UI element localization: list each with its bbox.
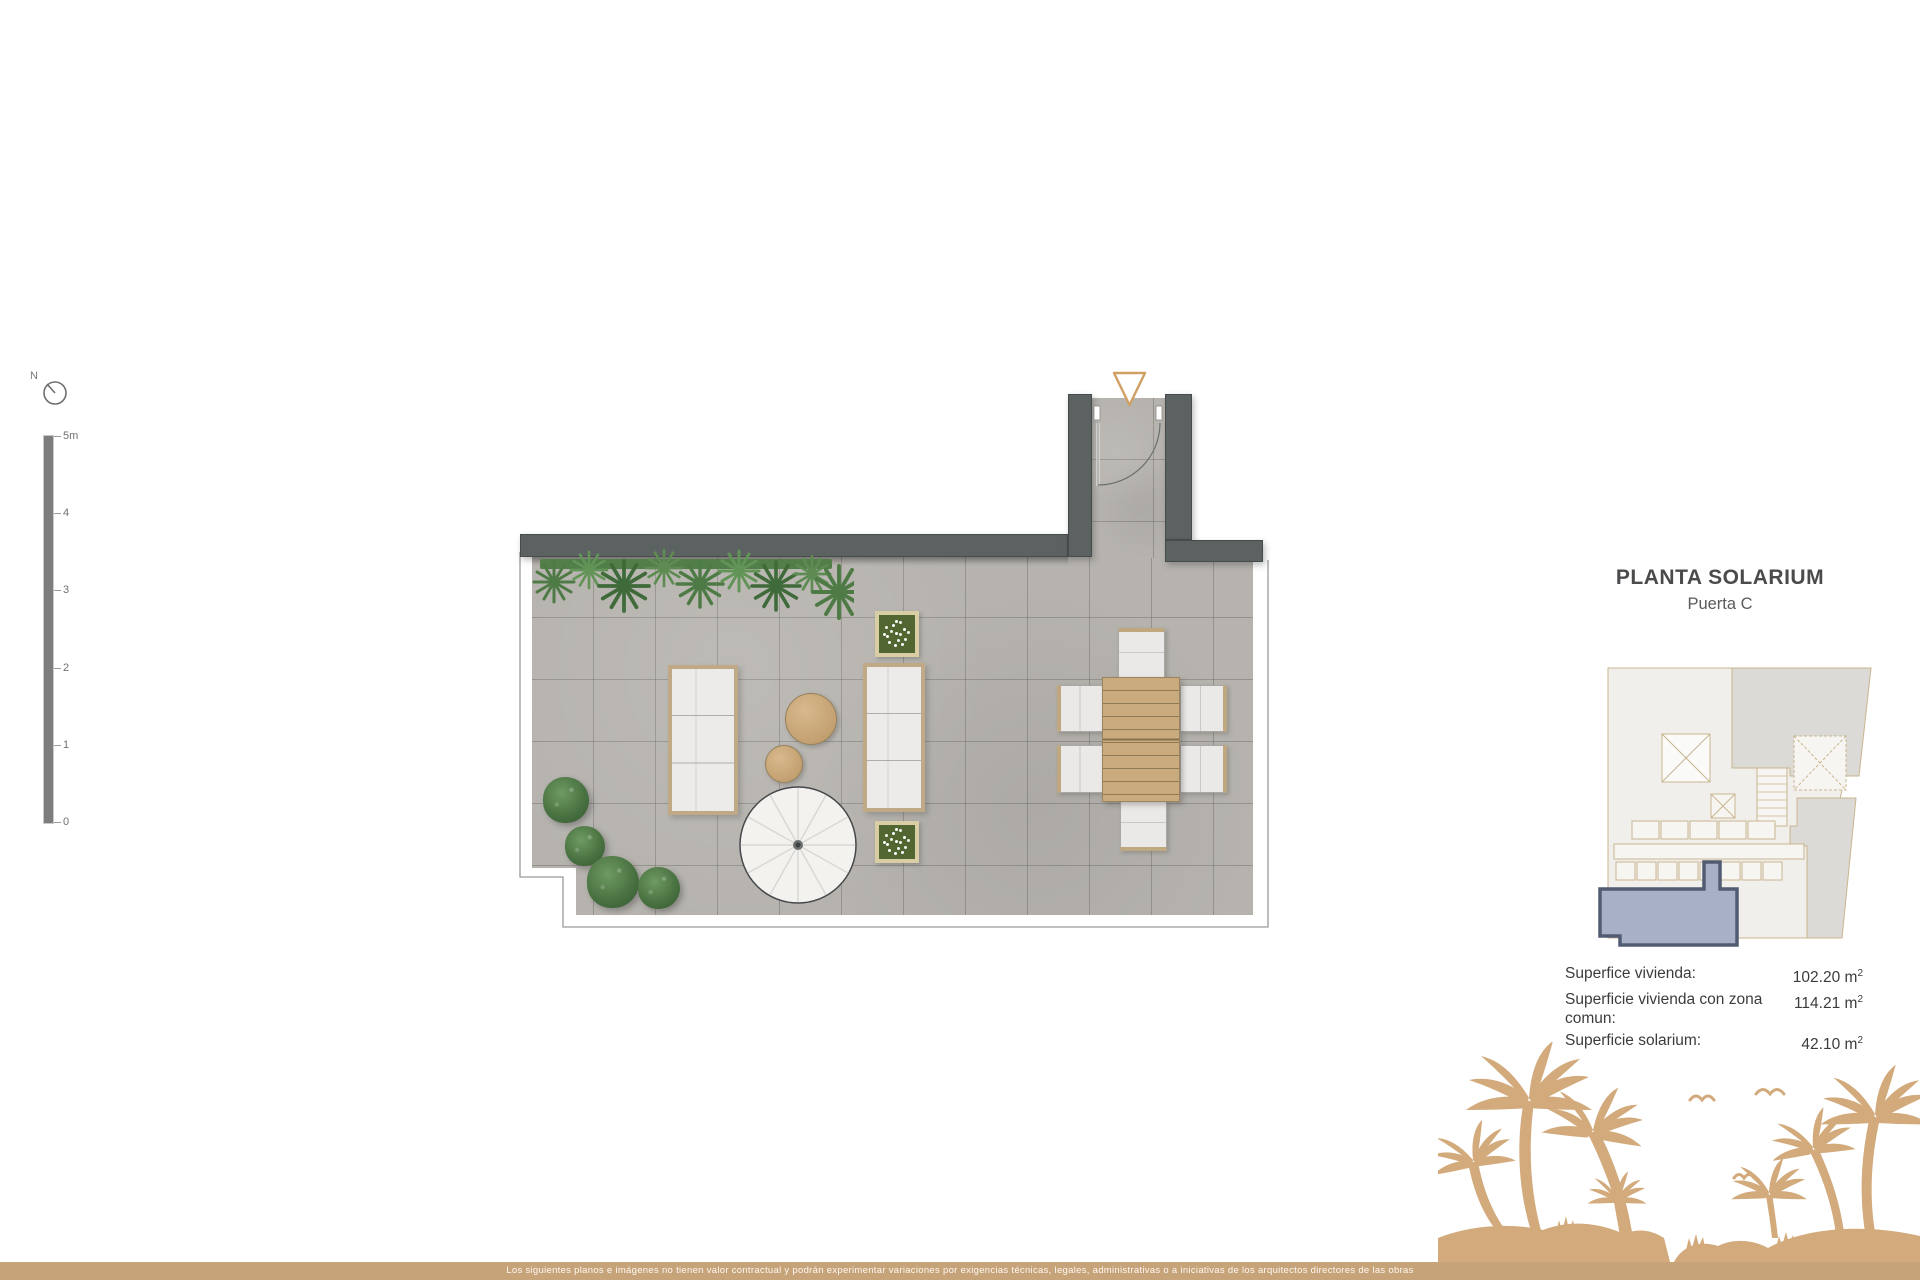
scale-label: 3 <box>63 583 69 597</box>
dining-chair <box>1118 628 1165 678</box>
scale-label: 0 <box>63 815 69 829</box>
area-value: 102.20 m2 <box>1773 964 1863 987</box>
key-plan <box>1594 656 1878 950</box>
scale-tick <box>54 590 61 591</box>
scale-tick <box>54 745 61 746</box>
bush <box>587 856 639 908</box>
disclaimer-text: Los siguientes planos e imágenes no tien… <box>0 1262 1920 1280</box>
page-subtitle: Puerta C <box>1560 595 1880 614</box>
side-table <box>765 745 803 783</box>
bird-icon <box>1690 1090 1784 1179</box>
scale-label: 4 <box>63 506 69 520</box>
area-number: 102.20 <box>1793 969 1840 986</box>
planter <box>875 611 919 657</box>
dining-chair <box>1120 801 1167 851</box>
side-table <box>785 693 837 745</box>
hedge-plants <box>524 544 854 624</box>
entrance-arrow-icon <box>1111 370 1148 408</box>
scale-tick <box>54 668 61 669</box>
scale-tick <box>54 436 61 437</box>
lounger <box>863 663 925 812</box>
area-unit-sup: 2 <box>1857 994 1863 1005</box>
scale-label: 5m <box>63 429 78 443</box>
dining-chair <box>1057 685 1103 732</box>
dining-chair <box>1057 745 1103 793</box>
dining-chair <box>1180 685 1227 732</box>
entrance-right-wall <box>1165 394 1192 540</box>
scale-label: 1 <box>63 738 69 752</box>
door-swing-icon <box>1092 398 1165 498</box>
area-row: Superficie vivienda con zona comun: 114.… <box>1565 990 1863 1028</box>
compass-icon: N <box>24 366 76 414</box>
title-block: PLANTA SOLARIUM Puerta C <box>1560 566 1880 614</box>
dining-table <box>1102 677 1180 802</box>
footer-bar: Los siguientes planos e imágenes no tien… <box>0 1262 1920 1280</box>
palm-silhouette <box>1438 1042 1920 1262</box>
area-label: Superficie vivienda con zona comun: <box>1565 990 1773 1028</box>
scale-tick <box>54 822 61 823</box>
bush <box>638 867 680 909</box>
page-title: PLANTA SOLARIUM <box>1560 566 1880 590</box>
area-row: Superfice vivienda: 102.20 m2 <box>1565 964 1863 987</box>
planter-flowers <box>895 632 898 635</box>
area-number: 114.21 <box>1794 995 1840 1012</box>
planter <box>875 821 919 863</box>
dining-chair <box>1180 745 1227 793</box>
right-return-wall <box>1165 540 1263 562</box>
area-unit: m <box>1845 995 1858 1012</box>
area-unit: m <box>1845 969 1858 986</box>
lounger <box>668 665 738 815</box>
entrance-left-wall <box>1068 394 1092 557</box>
bush <box>543 777 589 823</box>
area-label: Superfice vivienda: <box>1565 964 1773 987</box>
north-label: N <box>30 370 38 382</box>
planter-flowers <box>895 840 898 843</box>
area-value: 114.21 m2 <box>1773 990 1863 1028</box>
scale-bar <box>44 436 53 823</box>
scale-tick <box>54 513 61 514</box>
area-unit-sup: 2 <box>1857 968 1863 979</box>
plan-sheet: N 5m 4 3 2 1 0 <box>0 0 1920 1280</box>
scale-label: 2 <box>63 661 69 675</box>
parasol <box>738 785 858 905</box>
